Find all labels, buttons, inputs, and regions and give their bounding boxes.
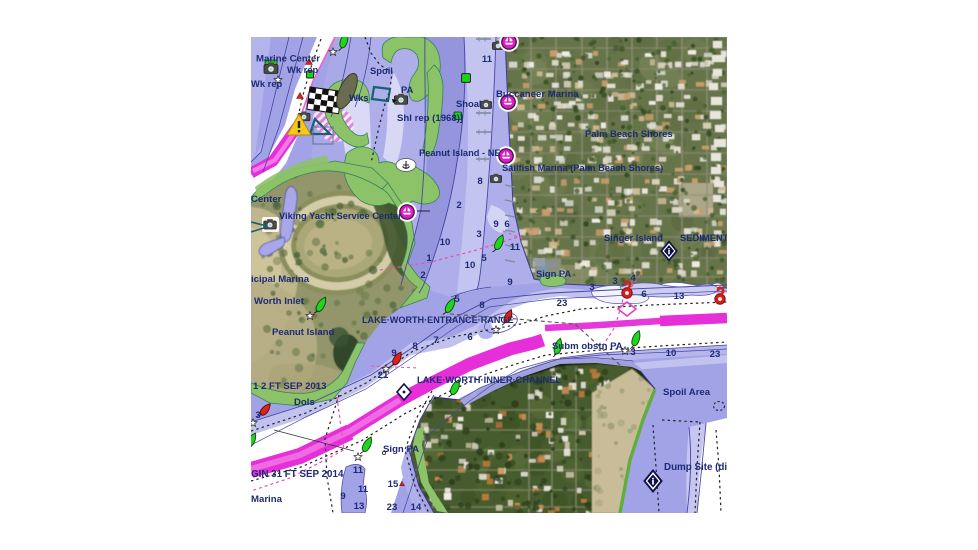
svg-text:1: 1 bbox=[426, 253, 432, 264]
svg-text:Wks: Wks bbox=[349, 93, 369, 104]
svg-text:23: 23 bbox=[557, 298, 568, 309]
svg-text:GIN 31 FT SEP 2014: GIN 31 FT SEP 2014 bbox=[251, 469, 344, 480]
svg-text:13: 13 bbox=[354, 501, 365, 512]
svg-text:11: 11 bbox=[510, 242, 521, 253]
svg-text:15: 15 bbox=[388, 479, 399, 490]
svg-text:2: 2 bbox=[456, 200, 461, 211]
svg-text:11: 11 bbox=[482, 54, 493, 65]
svg-text:LAKE·WORTH·INNER·CHANNEL: LAKE·WORTH·INNER·CHANNEL bbox=[417, 375, 561, 385]
svg-text:Dols: Dols bbox=[294, 397, 315, 408]
svg-text:3: 3 bbox=[589, 282, 594, 293]
svg-text:4: 4 bbox=[630, 273, 636, 284]
svg-text:SEDIMENT: SEDIMENT bbox=[680, 232, 727, 243]
svg-text:LAKE·WORTH·ENTRANCE·RANGE: LAKE·WORTH·ENTRANCE·RANGE bbox=[362, 315, 514, 325]
svg-text:23: 23 bbox=[710, 349, 721, 360]
svg-text:Spoil Area: Spoil Area bbox=[663, 387, 711, 398]
svg-text:Worth Inlet: Worth Inlet bbox=[254, 296, 305, 307]
svg-text:6: 6 bbox=[504, 219, 509, 230]
svg-text:PA: PA bbox=[401, 84, 414, 95]
svg-text:Buccaneer Marina: Buccaneer Marina bbox=[496, 89, 579, 100]
svg-text:6: 6 bbox=[641, 289, 646, 300]
svg-text:10: 10 bbox=[666, 348, 677, 359]
svg-text:3: 3 bbox=[612, 276, 617, 287]
svg-text:10: 10 bbox=[440, 237, 451, 248]
svg-text:8: 8 bbox=[477, 176, 483, 187]
svg-text:Subm obstn PA: Subm obstn PA bbox=[552, 341, 623, 352]
svg-text:Viking Yacht Service Center: Viking Yacht Service Center bbox=[279, 211, 402, 221]
svg-text:Spoil: Spoil bbox=[370, 65, 393, 76]
svg-text:1 2 FT SEP 2013: 1 2 FT SEP 2013 bbox=[253, 381, 326, 392]
svg-text:Peanut Island: Peanut Island bbox=[272, 327, 335, 338]
svg-text:Marina: Marina bbox=[251, 494, 283, 505]
svg-text:6: 6 bbox=[467, 332, 472, 343]
svg-text:8: 8 bbox=[412, 341, 418, 352]
svg-text:9: 9 bbox=[340, 491, 345, 502]
svg-text:13: 13 bbox=[674, 291, 685, 302]
svg-text:8: 8 bbox=[479, 300, 485, 311]
svg-text:21: 21 bbox=[378, 370, 389, 381]
svg-text:Palm Beach Shores: Palm Beach Shores bbox=[585, 128, 673, 139]
svg-text:3: 3 bbox=[630, 347, 635, 358]
svg-text:3: 3 bbox=[476, 229, 481, 240]
svg-text:Singer Island: Singer Island bbox=[604, 232, 663, 243]
svg-text:Peanut Island - NE: Peanut Island - NE bbox=[419, 148, 501, 158]
svg-text:Shoal: Shoal bbox=[456, 98, 482, 109]
svg-text:3: 3 bbox=[255, 410, 260, 421]
svg-text:2: 2 bbox=[420, 270, 425, 281]
svg-text:icipal Marina: icipal Marina bbox=[251, 274, 310, 285]
svg-text:Wk rep: Wk rep bbox=[251, 78, 283, 89]
svg-text:Marine Center: Marine Center bbox=[256, 54, 320, 65]
svg-text:9: 9 bbox=[391, 348, 396, 359]
svg-text:11: 11 bbox=[358, 484, 369, 495]
svg-text:11: 11 bbox=[353, 465, 364, 476]
svg-text:9: 9 bbox=[493, 219, 498, 230]
svg-text:7: 7 bbox=[433, 335, 438, 346]
svg-text:Wk rep: Wk rep bbox=[287, 64, 319, 75]
svg-text:10: 10 bbox=[465, 260, 476, 271]
svg-text:Dump Site (di: Dump Site (di bbox=[664, 462, 727, 473]
svg-text:14: 14 bbox=[411, 502, 422, 513]
svg-text:Center: Center bbox=[251, 194, 282, 205]
svg-text:5: 5 bbox=[481, 253, 487, 264]
svg-text:Sailfish Marina (Palm Beach Sh: Sailfish Marina (Palm Beach Shores) bbox=[502, 163, 663, 173]
svg-text:9: 9 bbox=[507, 277, 512, 288]
svg-text:Shl rep (1968)]: Shl rep (1968)] bbox=[397, 113, 463, 124]
svg-text:23: 23 bbox=[387, 502, 398, 513]
svg-text:5: 5 bbox=[454, 294, 460, 305]
svg-text:Sign PA: Sign PA bbox=[383, 444, 419, 455]
svg-text:Sign PA: Sign PA bbox=[536, 268, 571, 279]
